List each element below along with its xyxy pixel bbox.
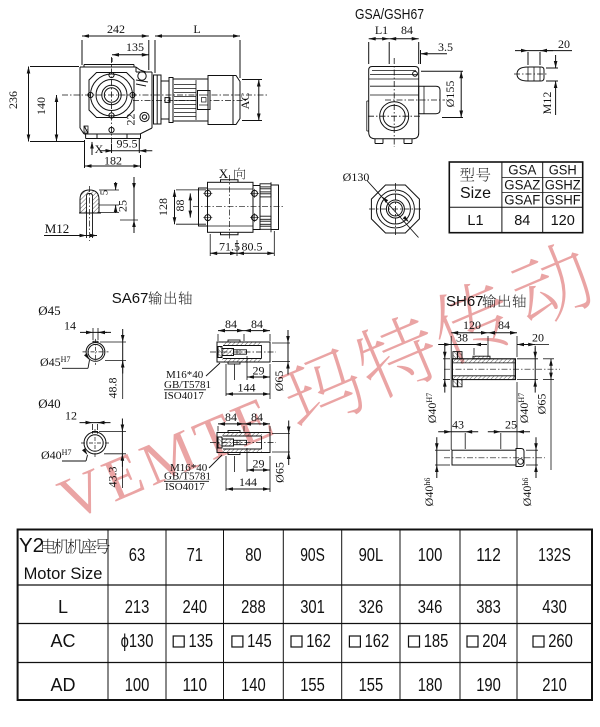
svg-text:Ø65: Ø65 (272, 371, 286, 392)
svg-text:L: L (193, 22, 200, 36)
svg-text:135: 135 (189, 631, 214, 651)
svg-text:120: 120 (551, 213, 575, 229)
svg-text:71.5: 71.5 (219, 240, 240, 254)
svg-text:AC: AC (50, 631, 75, 651)
svg-text:90S: 90S (300, 545, 325, 565)
svg-text:84: 84 (401, 23, 413, 37)
svg-text:100: 100 (125, 675, 150, 695)
svg-text:5: 5 (99, 189, 111, 195)
svg-text:110: 110 (183, 675, 208, 695)
svg-text:155: 155 (359, 675, 384, 695)
svg-text:20: 20 (558, 37, 570, 51)
svg-text:140: 140 (241, 675, 266, 695)
svg-text:GSH: GSH (549, 163, 577, 178)
svg-text:48.8: 48.8 (106, 378, 120, 399)
svg-text:190: 190 (476, 675, 501, 695)
svg-text:14: 14 (64, 319, 76, 333)
svg-text:95.5: 95.5 (117, 137, 138, 151)
svg-text:GSHF: GSHF (545, 192, 581, 207)
svg-text:144: 144 (239, 475, 257, 489)
svg-text:25: 25 (116, 200, 130, 212)
svg-text:ϕ130: ϕ130 (121, 631, 154, 651)
svg-text:100: 100 (418, 545, 443, 565)
svg-text:43: 43 (452, 418, 464, 432)
svg-text:M12: M12 (45, 221, 70, 236)
svg-text:X: X (219, 166, 229, 181)
svg-text:AD: AD (50, 675, 75, 695)
svg-text:GSA/GSH67: GSA/GSH67 (355, 6, 424, 23)
svg-text:43.3: 43.3 (106, 467, 120, 488)
svg-text:L1: L1 (467, 213, 483, 229)
svg-text:12: 12 (65, 409, 77, 423)
svg-text:M12: M12 (540, 92, 554, 115)
svg-text:Size: Size (460, 185, 491, 202)
svg-text:213: 213 (125, 597, 150, 617)
svg-text:Motor Size: Motor Size (24, 565, 103, 583)
svg-text:29: 29 (253, 364, 265, 378)
svg-text:346: 346 (418, 597, 443, 617)
svg-text:84: 84 (225, 317, 237, 331)
svg-text:Ø40: Ø40 (38, 396, 60, 411)
svg-text:84: 84 (251, 317, 263, 331)
svg-text:288: 288 (241, 597, 266, 617)
svg-text:Ø155: Ø155 (443, 81, 457, 108)
svg-text:63: 63 (129, 545, 145, 565)
svg-text:Ø65: Ø65 (273, 462, 287, 483)
svg-text:210: 210 (542, 675, 567, 695)
svg-text:L: L (58, 597, 68, 617)
svg-text:155: 155 (300, 675, 325, 695)
svg-text:25: 25 (505, 418, 517, 432)
svg-text:71: 71 (187, 545, 203, 565)
svg-text:240: 240 (183, 597, 208, 617)
svg-text:128: 128 (156, 198, 170, 216)
svg-text:135: 135 (126, 40, 144, 54)
svg-text:301: 301 (300, 597, 325, 617)
svg-text:80.5: 80.5 (242, 240, 263, 254)
svg-text:Ø65: Ø65 (535, 394, 549, 415)
svg-text:430: 430 (542, 597, 567, 617)
svg-text:38: 38 (456, 331, 468, 345)
svg-text:Ø45: Ø45 (38, 303, 60, 318)
svg-text:GSA: GSA (508, 163, 536, 178)
svg-text:GSAZ: GSAZ (504, 178, 540, 193)
svg-text:80: 80 (245, 545, 261, 565)
svg-text:84: 84 (225, 410, 237, 424)
svg-text:GSHZ: GSHZ (545, 178, 581, 193)
svg-text:112: 112 (476, 545, 501, 565)
svg-text:22: 22 (124, 114, 138, 126)
svg-text:182: 182 (104, 154, 122, 168)
svg-text:29: 29 (253, 457, 265, 471)
svg-text:242: 242 (107, 22, 125, 36)
svg-text:84: 84 (251, 410, 263, 424)
svg-text:84: 84 (498, 318, 510, 332)
svg-text:260: 260 (548, 631, 573, 651)
svg-text:180: 180 (418, 675, 443, 695)
svg-text:Y2: Y2 (19, 534, 44, 557)
svg-text:SA67: SA67 (112, 290, 149, 307)
svg-text:144: 144 (238, 381, 256, 395)
svg-text:ISO4017: ISO4017 (165, 481, 205, 493)
svg-text:145: 145 (247, 631, 272, 651)
svg-text:236: 236 (6, 91, 20, 109)
svg-text:Ø130: Ø130 (343, 170, 370, 184)
svg-text:132S: 132S (538, 545, 571, 565)
svg-text:383: 383 (476, 597, 501, 617)
svg-text:AC: AC (238, 93, 252, 110)
svg-text:88: 88 (173, 200, 187, 212)
svg-text:L1: L1 (375, 23, 388, 37)
svg-text:20: 20 (532, 331, 544, 345)
svg-text:140: 140 (34, 97, 48, 115)
svg-text:84: 84 (514, 213, 530, 229)
svg-text:GSAF: GSAF (504, 192, 540, 207)
svg-text:326: 326 (359, 597, 384, 617)
svg-text:204: 204 (482, 631, 507, 651)
svg-text:90L: 90L (359, 545, 384, 565)
svg-text:185: 185 (424, 631, 449, 651)
svg-text:3.5: 3.5 (438, 40, 453, 54)
svg-text:X: X (95, 142, 104, 156)
svg-text:SH67: SH67 (446, 293, 484, 310)
svg-text:162: 162 (365, 631, 390, 651)
svg-text:ISO4017: ISO4017 (164, 390, 204, 402)
svg-text:162: 162 (306, 631, 331, 651)
